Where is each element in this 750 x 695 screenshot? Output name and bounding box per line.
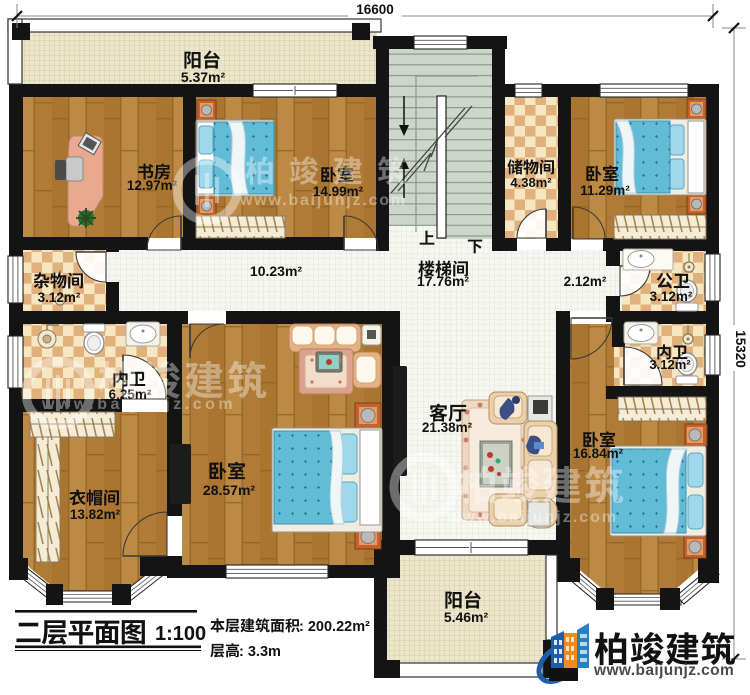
svg-text:www.baijunjz.com: www.baijunjz.com xyxy=(239,192,407,209)
svg-text:www.baijunjz.com: www.baijunjz.com xyxy=(41,396,236,413)
svg-text:11.29m²: 11.29m² xyxy=(580,183,630,198)
svg-text:2.12m²: 2.12m² xyxy=(564,274,607,289)
svg-text:: 200.22m²: : 200.22m² xyxy=(299,619,370,635)
svg-text:1:100: 1:100 xyxy=(155,623,206,645)
svg-text:www.baijunjz.com: www.baijunjz.com xyxy=(447,509,618,526)
svg-text:17.76m²: 17.76m² xyxy=(417,273,469,289)
svg-text:28.57m²: 28.57m² xyxy=(203,482,255,498)
svg-text:15320: 15320 xyxy=(733,330,748,368)
svg-text:5.46m²: 5.46m² xyxy=(444,609,489,625)
svg-text:12.97m²: 12.97m² xyxy=(127,178,178,193)
svg-text:3.12m²: 3.12m² xyxy=(649,357,691,372)
svg-text:16600: 16600 xyxy=(356,2,394,17)
svg-text:4.38m²: 4.38m² xyxy=(510,175,552,190)
svg-text:10.23m²: 10.23m² xyxy=(250,263,302,279)
svg-text:3.12m²: 3.12m² xyxy=(38,290,81,305)
svg-text:: 3.3m: : 3.3m xyxy=(239,644,281,660)
svg-text:13.82m²: 13.82m² xyxy=(70,507,121,522)
svg-text:5.37m²: 5.37m² xyxy=(181,69,226,85)
svg-text:16.84m²: 16.84m² xyxy=(573,446,624,461)
svg-text:21.38m²: 21.38m² xyxy=(422,420,473,435)
svg-text:www.baijunjz.com: www.baijunjz.com xyxy=(593,662,734,679)
svg-text:3.12m²: 3.12m² xyxy=(650,289,693,304)
